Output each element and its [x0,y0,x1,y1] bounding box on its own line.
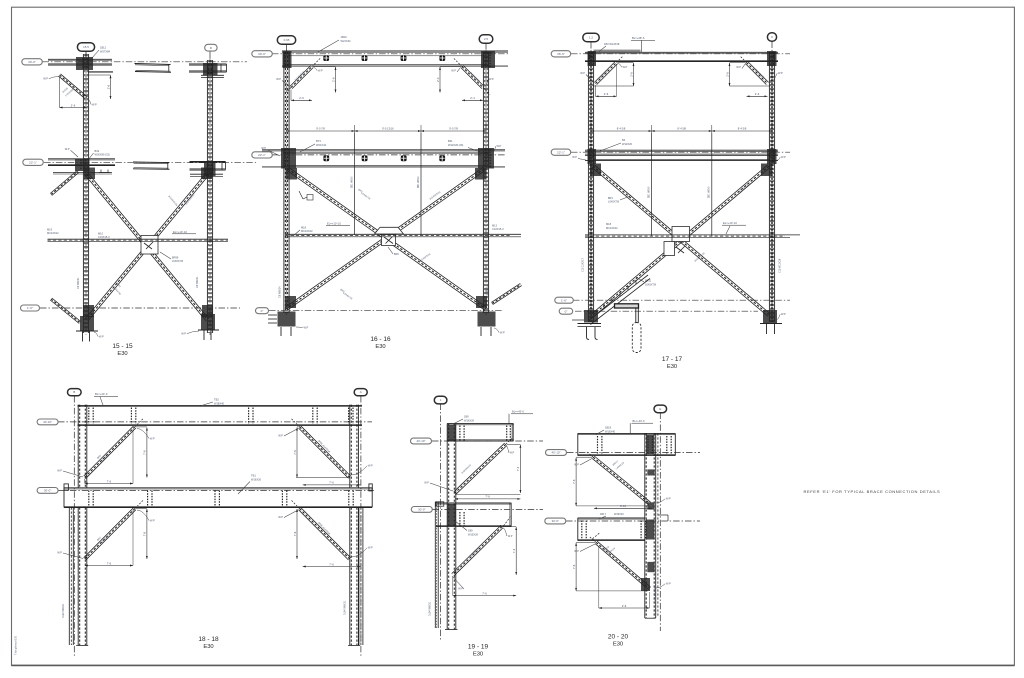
svg-text:W16X26: W16X26 [464,418,475,422]
svg-text:2'-6: 2'-6 [629,72,633,77]
svg-text:1B12: 1B12 [100,46,107,50]
svg-text:W.P: W.P [278,434,283,438]
svg-text:2'-6: 2'-6 [106,84,110,89]
svg-text:C15 W12X26: C15 W12X26 [779,258,782,273]
svg-text:W.P: W.P [276,77,281,81]
svg-text:0.95: 0.95 [284,38,290,42]
svg-text:9'-0 7/8: 9'-0 7/8 [316,126,325,130]
svg-text:W.P: W.P [508,534,513,538]
svg-text:MC10X22: MC10X22 [47,231,59,235]
svg-text:E30: E30 [667,364,677,370]
svg-text:DB1 W6X9: DB1 W6X9 [709,186,711,198]
svg-text:2.5: 2.5 [484,37,489,41]
svg-text:7'-6: 7'-6 [329,481,334,485]
svg-text:20 - 20: 20 - 20 [608,633,629,640]
svg-text:7'-6: 7'-6 [329,562,334,566]
svg-text:C8 W8X31: C8 W8X31 [77,277,80,289]
svg-text:W16X40: W16X40 [605,430,616,434]
svg-text:7'-6: 7'-6 [107,479,112,483]
svg-text:30'-0": 30'-0" [552,519,559,523]
svg-text:40'-10": 40'-10" [417,439,426,443]
svg-text:TB2: TB2 [214,398,219,402]
svg-text:A: A [360,390,362,394]
svg-text:W.P: W.P [43,77,48,81]
svg-text:W16X26: W16X26 [251,477,262,481]
svg-text:W.P: W.P [181,332,186,336]
svg-text:E30: E30 [375,344,385,350]
svg-text:2'-6: 2'-6 [622,604,627,608]
svg-text:DB1 W6X9: DB1 W6X9 [649,186,651,198]
svg-text:E30: E30 [117,351,127,357]
svg-text:1B10: 1B10 [341,35,348,39]
svg-text:40'-10": 40'-10" [43,420,52,424]
svg-text:2'-4: 2'-4 [470,96,475,100]
svg-text:E30: E30 [203,644,213,650]
svg-text:C8 W8X24: C8 W8X24 [487,285,490,297]
svg-text:W30X99 (32): W30X99 (32) [95,153,110,157]
svg-text:BR99: BR99 [172,256,179,259]
svg-text:7'-6: 7'-6 [485,495,490,499]
svg-text:W.P: W.P [666,582,671,586]
svg-text:DB1 W6X9: DB1 W6X9 [418,176,420,188]
svg-text:M10: M10 [98,232,104,236]
svg-text:BL=+43'-0: BL=+43'-0 [633,419,645,423]
svg-text:40'-10": 40'-10" [552,451,561,455]
svg-text:8'-4 5/8: 8'-4 5/8 [617,126,626,130]
svg-text:M19: M19 [47,228,53,232]
svg-text:DL84 W8X31: DL84 W8X31 [62,603,65,618]
svg-text:2'-6: 2'-6 [71,103,76,107]
svg-text:18 - 18: 18 - 18 [198,636,219,643]
svg-text:W.P: W.P [489,77,494,81]
svg-text:C10X15.3: C10X15.3 [98,235,110,239]
svg-text:EL=+10'-10: EL=+10'-10 [173,230,187,234]
svg-text:TB1: TB1 [251,474,256,478]
svg-text:C10X15.3: C10X15.3 [492,227,504,231]
svg-text:M18: M18 [606,222,612,226]
svg-text:8'-4 5/8: 8'-4 5/8 [738,126,747,130]
svg-text:30'-0": 30'-0" [44,488,51,492]
svg-text:W.P: W.P [500,331,505,335]
svg-text:2'-6: 2'-6 [755,92,760,96]
svg-text:7'-4: 7'-4 [512,548,516,553]
svg-text:B: B [73,390,75,394]
svg-text:W.P: W.P [318,69,323,73]
svg-text:W.P: W.P [57,469,62,473]
svg-text:7'-6: 7'-6 [293,450,297,455]
svg-text:9'-0 13/16: 9'-0 13/16 [382,126,394,130]
svg-text:1B9: 1B9 [468,529,473,533]
svg-text:W.P: W.P [278,515,283,519]
svg-text:2'-4: 2'-4 [436,77,440,82]
svg-text:B4: B4 [622,138,626,142]
svg-text:W.P: W.P [57,551,62,555]
svg-text:W18X40: W18X40 [214,402,225,406]
svg-text:7'-6: 7'-6 [572,479,576,484]
svg-text:2'-6: 2'-6 [299,96,304,100]
svg-text:1B9: 1B9 [464,415,469,419]
svg-text:E30: E30 [613,642,623,648]
svg-text:W16X26: W16X26 [614,513,624,516]
svg-text:9'-10: 9'-10 [620,504,626,508]
svg-text:22'-1": 22'-1" [557,150,565,154]
svg-text:9'-0 7/8: 9'-0 7/8 [449,126,458,130]
svg-text:7'-4: 7'-4 [516,466,520,471]
svg-text:22'-1": 22'-1" [258,153,266,157]
svg-text:W.P: W.P [580,71,585,75]
svg-text:1B18: 1B18 [605,426,612,430]
svg-text:7'-6: 7'-6 [143,450,147,455]
svg-text:C8 W8X24: C8 W8X24 [279,286,282,298]
svg-text:BL=+43'-0: BL=+43'-0 [512,410,524,414]
svg-text:BT3: BT3 [316,139,321,143]
svg-text:2'-6: 2'-6 [725,72,729,77]
svg-text:2'-6: 2'-6 [331,77,335,82]
svg-text:W.P: W.P [150,519,155,523]
svg-text:B19: B19 [95,149,100,153]
svg-text:L6X6X7/8: L6X6X7/8 [608,201,620,204]
svg-text:W.P: W.P [623,65,628,69]
svg-text:7'-6: 7'-6 [143,531,147,536]
svg-text:36'-6": 36'-6" [557,52,565,56]
svg-text:EL=+10'-10: EL=+10'-10 [327,222,341,226]
svg-text:W.P: W.P [304,326,309,330]
svg-text:W12X26 (26): W12X26 (26) [448,143,463,147]
svg-text:15.5: 15.5 [83,45,89,49]
svg-text:8'-4 5/8: 8'-4 5/8 [677,126,686,130]
svg-text:W.P: W.P [92,103,97,107]
svg-text:L6X6X7/8: L6X6X7/8 [645,283,657,286]
svg-text:M18: M18 [301,225,307,229]
svg-text:W.P: W.P [424,481,429,485]
svg-text:BL=+38'-6: BL=+38'-6 [632,36,645,40]
svg-text:W.P: W.P [574,463,579,467]
svg-text:17 - 17: 17 - 17 [662,356,683,363]
svg-text:2'-6: 2'-6 [604,92,609,96]
svg-text:REFER 'E1' FOR TYPICAL BRACE C: REFER 'E1' FOR TYPICAL BRACE CONNECTION … [804,489,941,494]
svg-text:L6X6X7/8: L6X6X7/8 [172,260,184,263]
svg-text:MC10X22: MC10X22 [301,229,313,233]
svg-text:BR6: BR6 [394,253,399,256]
svg-text:19 - 19: 19 - 19 [468,644,489,651]
svg-text:16 - 16: 16 - 16 [370,336,391,343]
svg-text:C8 W8X31: C8 W8X31 [196,276,199,288]
svg-text:C15 W12X26: C15 W12X26 [655,587,657,601]
svg-text:7'-6: 7'-6 [482,591,487,595]
svg-text:1.2: 1.2 [589,36,594,40]
svg-text:W12X26: W12X26 [622,142,633,146]
svg-text:1'-6": 1'-6" [27,306,33,310]
svg-text:W.P: W.P [781,312,786,316]
svg-text:7'-6: 7'-6 [107,561,112,565]
svg-text:W.P: W.P [65,147,70,151]
svg-text:22'-1": 22'-1" [29,160,37,164]
svg-text:MC10X22: MC10X22 [606,226,618,230]
svg-text:W.P: W.P [497,144,502,148]
svg-text:30'-0": 30'-0" [418,507,425,511]
svg-text:W.P: W.P [778,71,783,75]
svg-text:W.P: W.P [368,546,373,550]
svg-text:E: E [659,407,661,411]
svg-text:W.P: W.P [574,549,579,553]
svg-text:W21X44: W21X44 [341,39,352,43]
svg-text:0": 0" [261,309,264,313]
svg-text:DB1 W6X9: DB1 W6X9 [352,176,354,188]
svg-text:7'-6: 7'-6 [293,531,297,536]
svg-text:W.P: W.P [781,155,786,159]
svg-text:W15X26: W15X26 [468,533,479,537]
svg-text:B41: B41 [448,139,453,143]
svg-text:W27X84: W27X84 [100,49,111,53]
svg-text:DL94 W8X31: DL94 W8X31 [429,601,432,616]
svg-text:15 - 15: 15 - 15 [112,343,133,350]
svg-text:7'-6: 7'-6 [572,564,576,569]
svg-text:W.P: W.P [510,451,515,455]
svg-text:W.P: W.P [368,464,373,468]
svg-text:W.P: W.P [261,146,266,150]
svg-text:E30: E30 [473,652,483,658]
svg-text:M12: M12 [492,223,498,227]
svg-text:C15 12X20.7: C15 12X20.7 [582,257,585,272]
svg-text:W.P: W.P [451,69,456,73]
svg-text:W.P: W.P [666,497,671,501]
svg-text:1'-6": 1'-6" [561,298,567,302]
svg-text:W.P: W.P [572,155,577,159]
svg-text:30'-0": 30'-0" [258,52,266,56]
svg-text:EL=+10'-10: EL=+10'-10 [723,221,737,225]
svg-text:1B17: 1B17 [600,513,606,516]
svg-text:1B3 W14X38: 1B3 W14X38 [604,42,620,46]
svg-text:W21X44: W21X44 [316,143,327,147]
svg-text:30'-0": 30'-0" [28,60,36,64]
svg-text:DL84 W8X31: DL84 W8X31 [344,600,347,615]
svg-text:W.P: W.P [150,437,155,441]
svg-text:W.P: W.P [736,65,741,69]
svg-text:T:\dwg\struct\E30: T:\dwg\struct\E30 [15,635,18,655]
svg-text:BR1: BR1 [608,197,613,200]
svg-text:0": 0" [565,309,568,313]
svg-text:BL=+43'-0: BL=+43'-0 [95,392,108,396]
svg-text:W.P: W.P [99,335,104,339]
